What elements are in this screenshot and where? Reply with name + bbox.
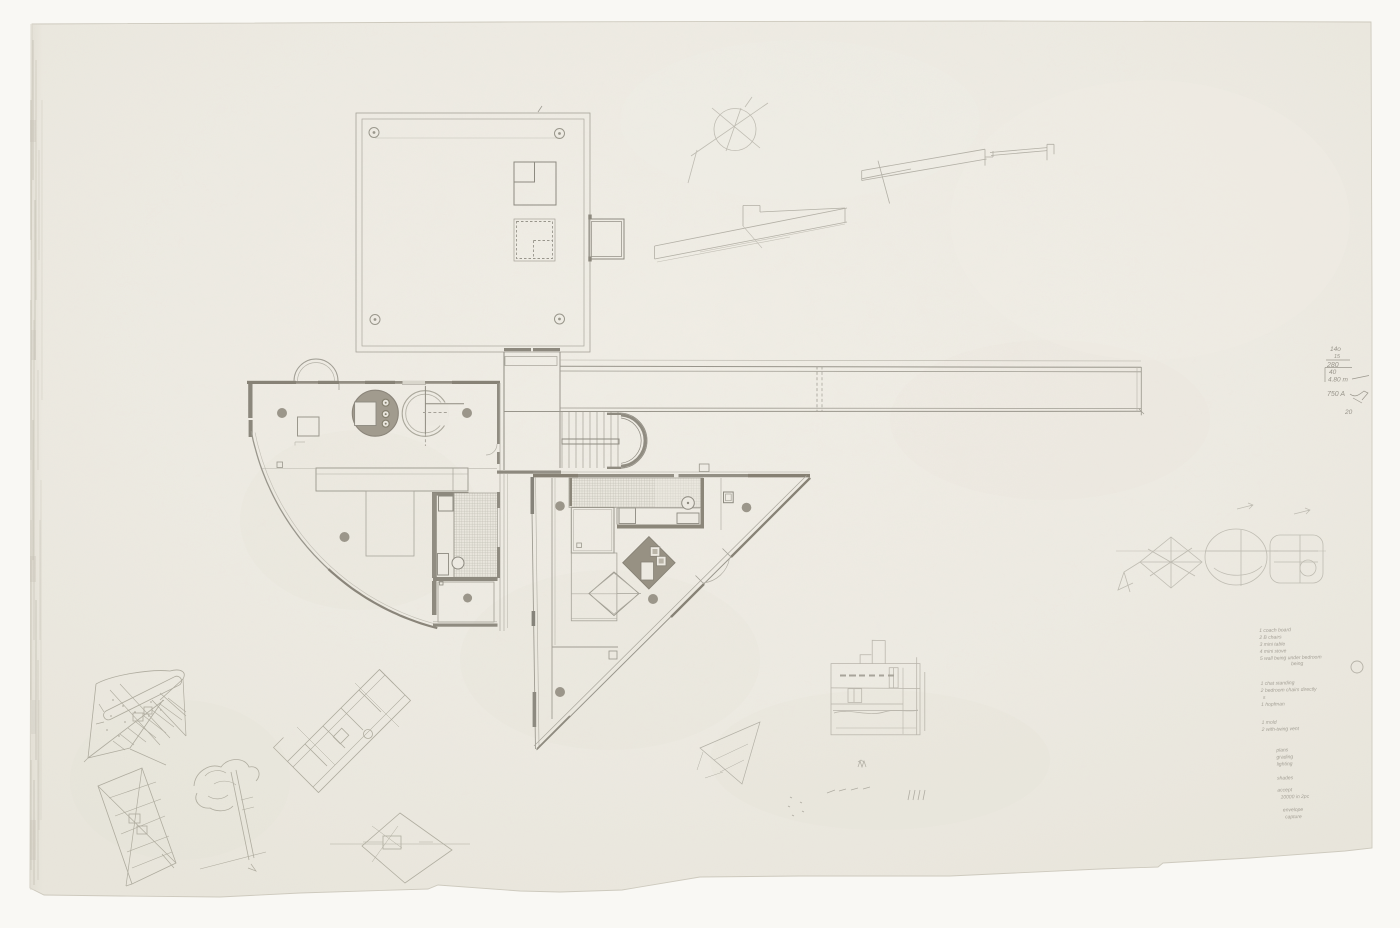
svg-text:3 mini table: 3 mini table <box>1259 641 1285 648</box>
svg-text:1 chat standing: 1 chat standing <box>1260 680 1294 687</box>
svg-text:10000 in 2pc: 10000 in 2pc <box>1280 794 1309 801</box>
svg-text:1 hopfman: 1 hopfman <box>1261 701 1285 708</box>
svg-text:15: 15 <box>1334 354 1341 360</box>
svg-text:20: 20 <box>1344 409 1353 416</box>
svg-text:2 B chairs: 2 B chairs <box>1258 634 1282 641</box>
svg-text:40: 40 <box>1329 369 1337 376</box>
svg-text:14o: 14o <box>1330 346 1341 353</box>
svg-text:grading: grading <box>1276 754 1293 760</box>
svg-text:capture: capture <box>1285 814 1302 820</box>
svg-text:750 A: 750 A <box>1327 391 1345 398</box>
svg-text:envelope: envelope <box>1283 807 1304 814</box>
svg-text:accept: accept <box>1277 787 1292 793</box>
svg-text:4 mini stove: 4 mini stove <box>1260 648 1287 655</box>
svg-text:lighting: lighting <box>1277 761 1293 767</box>
svg-text:plans: plans <box>1275 747 1289 753</box>
svg-text:4.80 m: 4.80 m <box>1328 377 1348 384</box>
svg-text:1 coach board: 1 coach board <box>1259 627 1291 634</box>
svg-text:280: 280 <box>1326 362 1339 369</box>
svg-text:being: being <box>1291 661 1304 667</box>
svg-text:shades: shades <box>1277 775 1294 781</box>
svg-text:2 with-twing vent: 2 with-twing vent <box>1261 726 1300 733</box>
svg-text:1 mold: 1 mold <box>1262 720 1277 726</box>
